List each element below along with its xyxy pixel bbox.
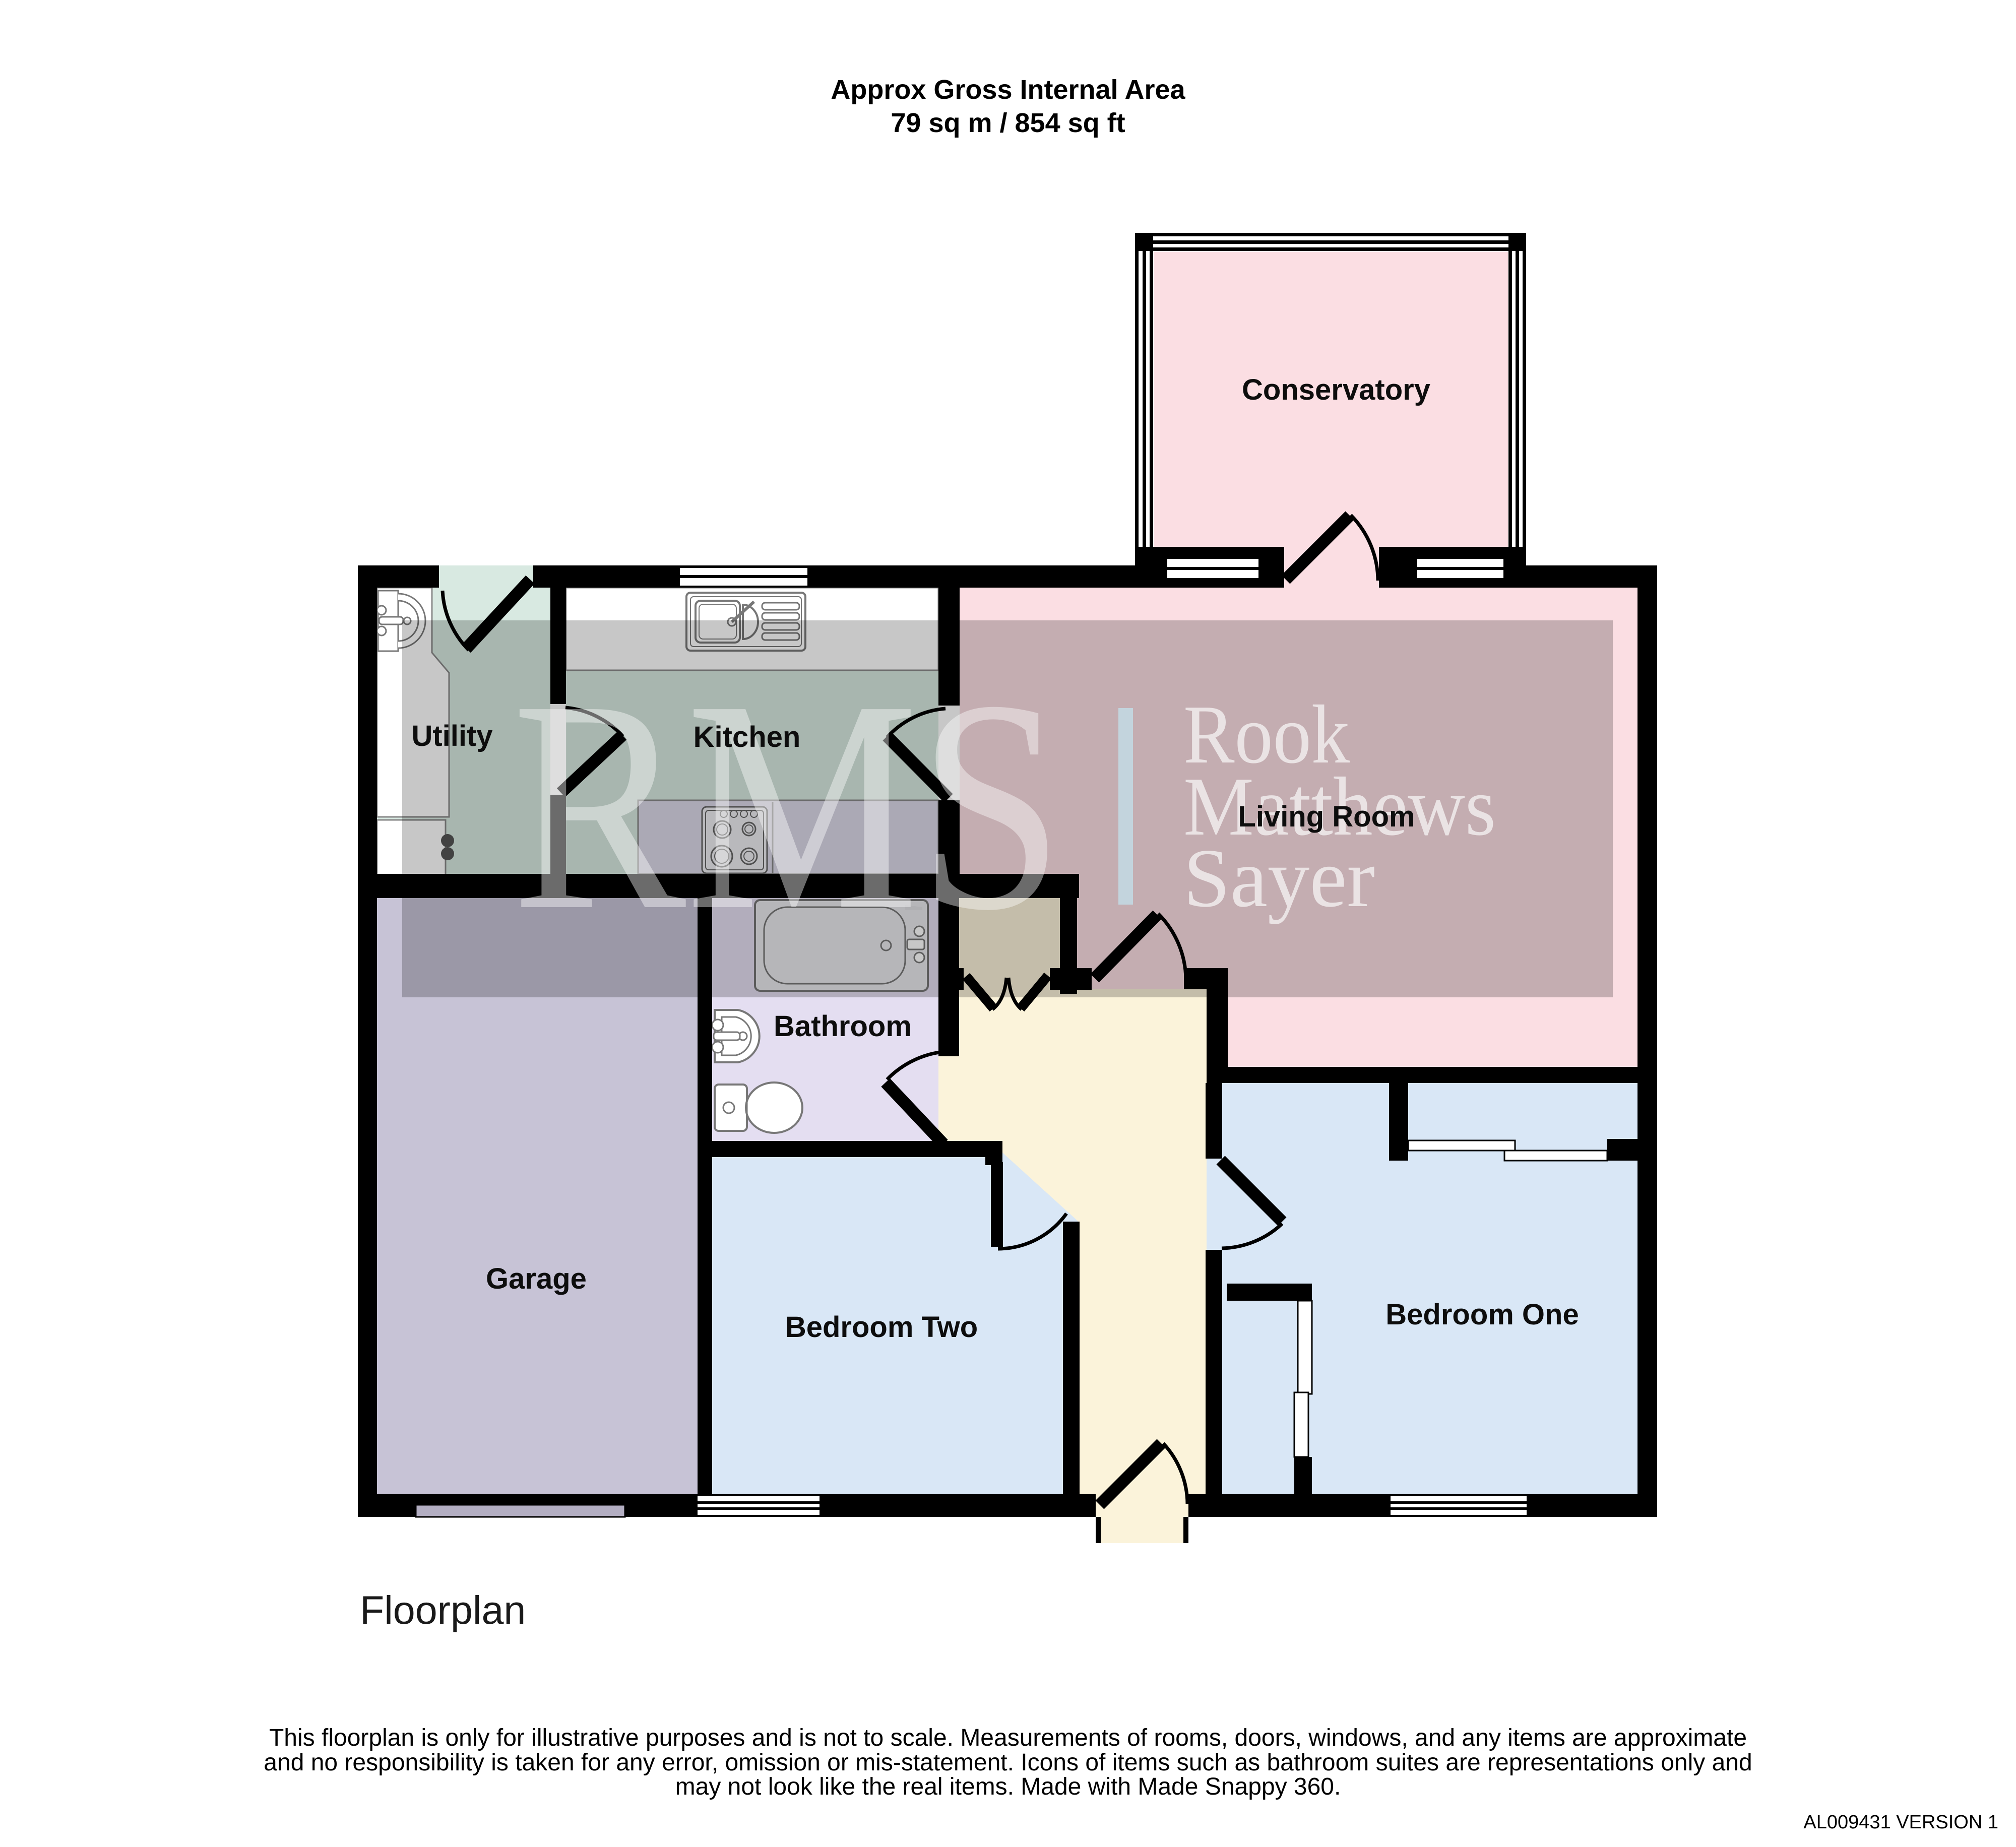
svg-text:may not look like the real ite: may not look like the real items. Made w… xyxy=(675,1773,1341,1800)
svg-text:79 sq m / 854 sq ft: 79 sq m / 854 sq ft xyxy=(891,108,1125,138)
svg-text:This floorplan is only for ill: This floorplan is only for illustrative … xyxy=(269,1725,1747,1751)
svg-text:AL009431 VERSION 1: AL009431 VERSION 1 xyxy=(1803,1812,1998,1833)
svg-text:Garage: Garage xyxy=(486,1262,587,1295)
svg-text:Sayer: Sayer xyxy=(1183,832,1375,924)
svg-text:Bathroom: Bathroom xyxy=(774,1010,912,1043)
svg-text:Bedroom Two: Bedroom Two xyxy=(785,1311,978,1344)
svg-text:Bedroom One: Bedroom One xyxy=(1385,1298,1579,1331)
svg-text:Floorplan: Floorplan xyxy=(360,1587,526,1632)
svg-text:and no responsibility is taken: and no responsibility is taken for any e… xyxy=(264,1749,1752,1776)
svg-text:Kitchen: Kitchen xyxy=(694,721,801,753)
svg-text:Approx Gross Internal Area: Approx Gross Internal Area xyxy=(831,75,1185,105)
svg-text:Conservatory: Conservatory xyxy=(1242,373,1430,406)
svg-text:Utility: Utility xyxy=(411,720,492,752)
svg-text:RMS: RMS xyxy=(512,638,1063,973)
svg-text:Living Room: Living Room xyxy=(1238,800,1415,833)
